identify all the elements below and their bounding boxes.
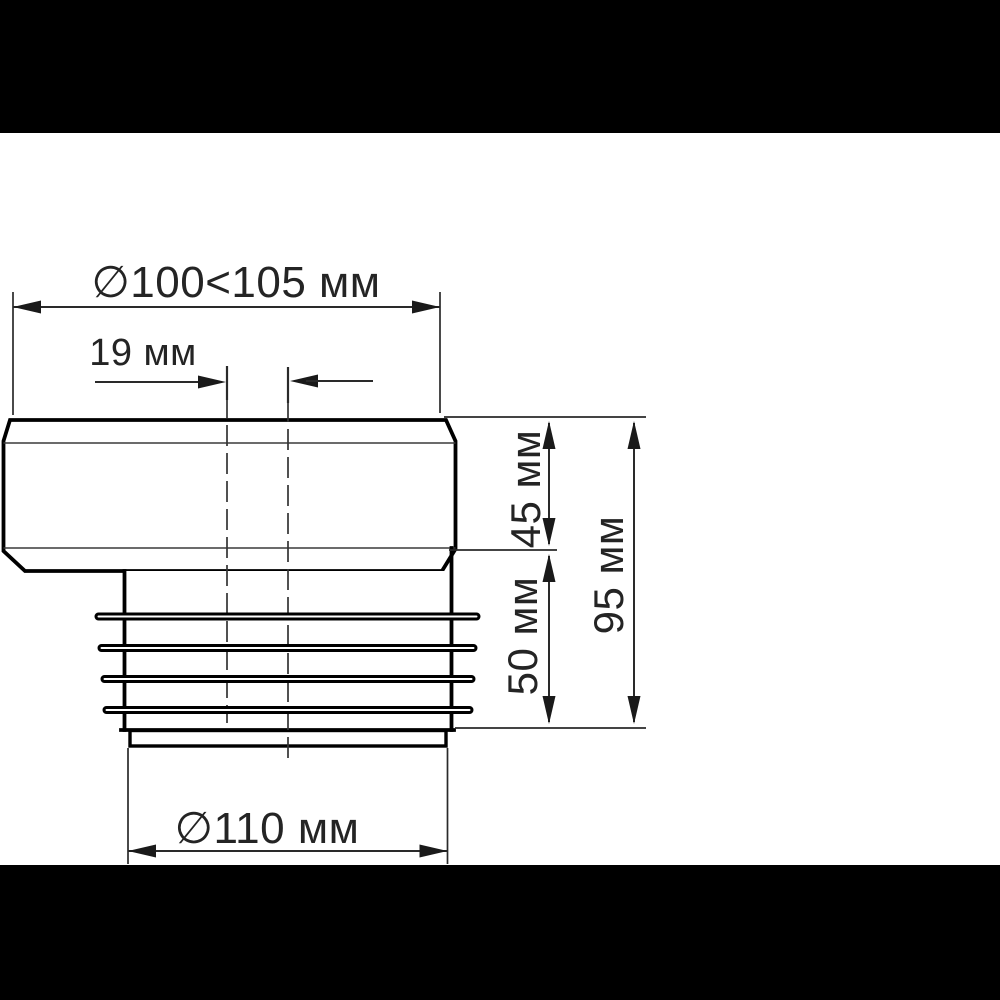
rib-2 bbox=[99, 646, 476, 651]
arrow-right-icon bbox=[198, 376, 226, 389]
arrow-right-icon bbox=[420, 845, 448, 858]
dim-45-label: 45 мм bbox=[502, 430, 549, 549]
dim-total-height: 95 мм bbox=[585, 421, 641, 724]
arrow-down-icon bbox=[543, 696, 556, 724]
arrow-left-icon bbox=[128, 845, 156, 858]
product-dimension-image: ∅100<105 мм 19 мм 45 мм bbox=[0, 0, 1000, 1000]
dim-bottom-label: ∅110 мм bbox=[175, 804, 360, 853]
connector-body bbox=[4, 420, 456, 746]
arrow-up-icon bbox=[628, 421, 641, 449]
dim-lower-height: 50 мм bbox=[499, 554, 556, 724]
technical-drawing: ∅100<105 мм 19 мм 45 мм bbox=[0, 0, 1000, 1000]
rib-3 bbox=[102, 677, 474, 682]
dim-95-label: 95 мм bbox=[585, 516, 632, 635]
dim-top-label: ∅100<105 мм bbox=[91, 258, 380, 307]
dim-offset: 19 мм bbox=[89, 332, 373, 403]
dim-outlet-diameter: ∅110 мм bbox=[128, 748, 448, 864]
dim-upper-height: 45 мм bbox=[502, 421, 556, 548]
arrow-left-icon bbox=[13, 301, 41, 314]
arrow-down-icon bbox=[628, 696, 641, 724]
rib-4 bbox=[104, 708, 472, 713]
rib-1 bbox=[96, 614, 479, 619]
dim-offset-label: 19 мм bbox=[89, 332, 197, 374]
arrow-right-icon bbox=[412, 301, 440, 314]
dim-50-label: 50 мм bbox=[499, 577, 546, 696]
